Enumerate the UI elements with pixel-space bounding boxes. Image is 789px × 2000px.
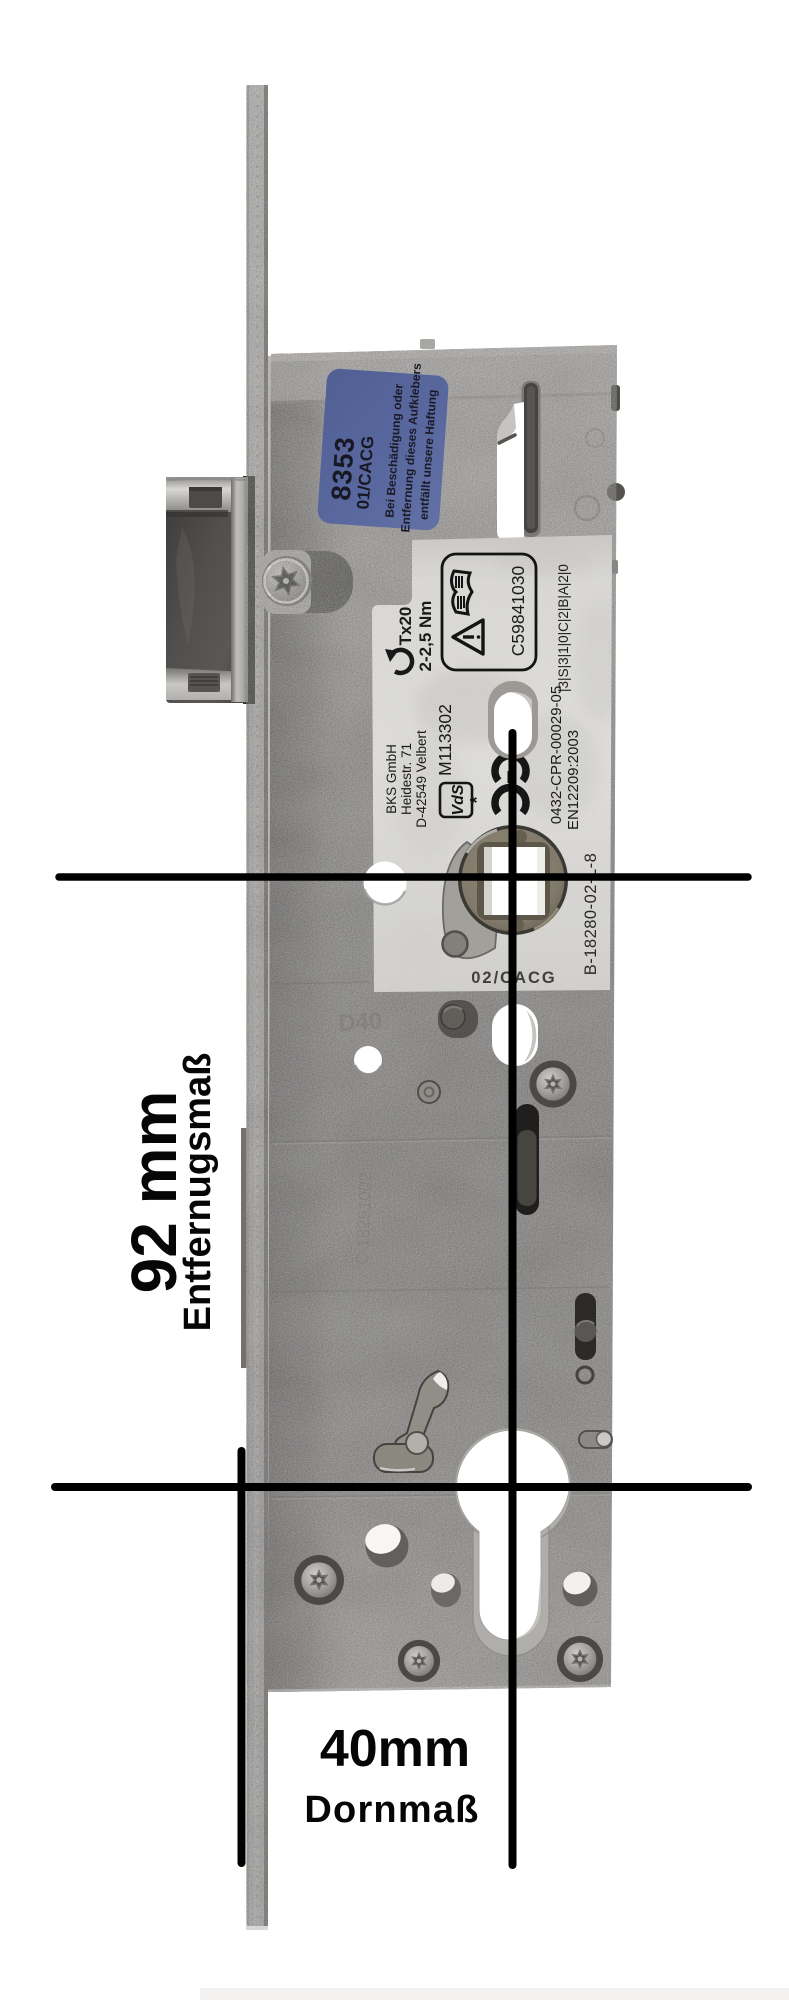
svg-text:Dornmaß: Dornmaß [304,1789,479,1831]
svg-text:C 18291002: C 18291002 [353,1172,375,1265]
svg-text:B-18280-02-L-8: B-18280-02-L-8 [582,853,600,976]
svg-text:|3|S|3|1|0|C|2|B|A|2|0: |3|S|3|1|0|C|2|B|A|2|0 [556,564,571,692]
svg-text:Entfernugsmaß: Entfernugsmaß [177,1053,219,1332]
svg-text:40mm: 40mm [320,1720,470,1778]
svg-text:D-42549 Velbert: D-42549 Velbert [414,730,429,828]
svg-text:M113302: M113302 [435,704,455,776]
svg-text:Tx20: Tx20 [396,607,415,646]
svg-text:2-2,5 Nm: 2-2,5 Nm [416,601,435,672]
svg-text:D40: D40 [337,1007,383,1037]
svg-text:C59841030: C59841030 [508,565,528,656]
svg-text:0432-CPR-00029-05: 0432-CPR-00029-05 [548,686,565,824]
svg-text:*: * [467,796,487,803]
svg-text:VdS: VdS [450,784,467,815]
svg-text:EN12209:2003: EN12209:2003 [565,730,582,830]
svg-text:Heidestr. 71: Heidestr. 71 [399,743,414,815]
svg-text:BKS GmbH: BKS GmbH [384,744,399,814]
